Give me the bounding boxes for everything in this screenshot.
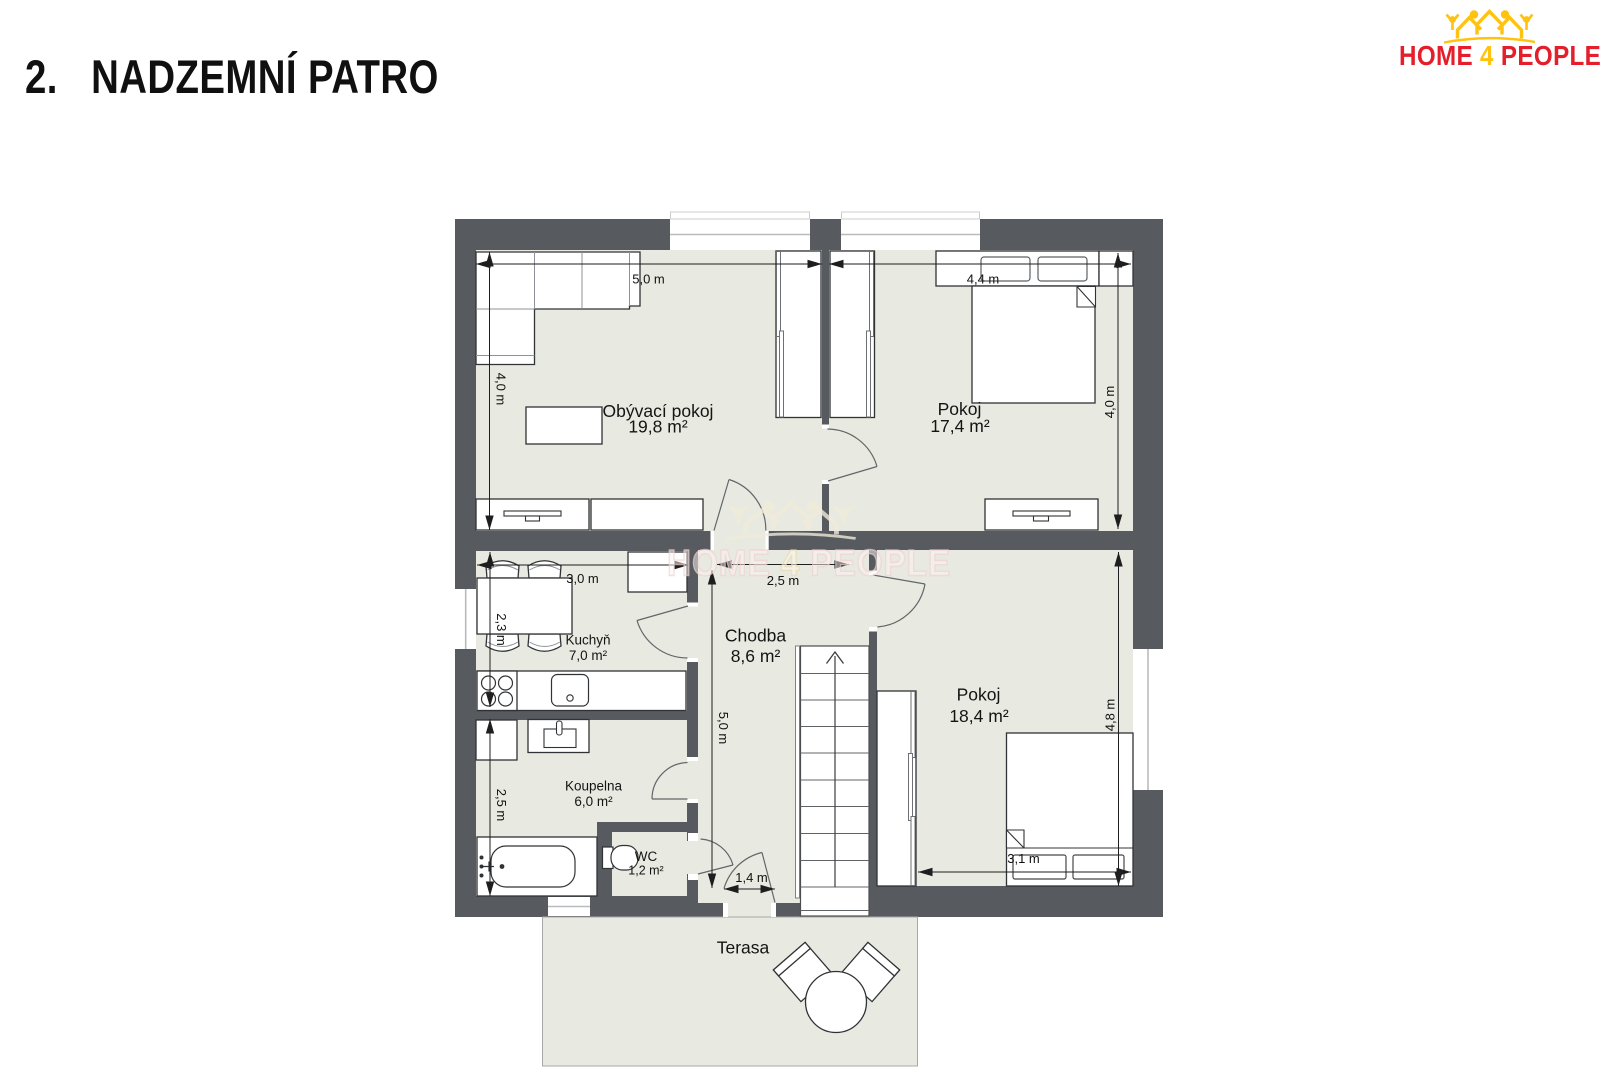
svg-text:4,0 m: 4,0 m bbox=[494, 373, 509, 406]
svg-text:Kuchyň: Kuchyň bbox=[565, 633, 610, 648]
svg-text:19,8 m²: 19,8 m² bbox=[628, 417, 687, 437]
svg-text:WC: WC bbox=[635, 849, 658, 864]
svg-text:5,0 m: 5,0 m bbox=[716, 712, 731, 745]
svg-text:4,0 m: 4,0 m bbox=[1102, 386, 1117, 419]
svg-text:18,4 m²: 18,4 m² bbox=[949, 706, 1008, 726]
svg-text:8,6 m²: 8,6 m² bbox=[731, 646, 781, 666]
svg-text:5,0 m: 5,0 m bbox=[632, 272, 665, 287]
svg-text:Pokoj: Pokoj bbox=[957, 685, 1001, 705]
svg-text:2,3 m: 2,3 m bbox=[494, 613, 509, 646]
svg-text:HOME 4 PEOPLE: HOME 4 PEOPLE bbox=[667, 542, 951, 584]
svg-text:Koupelna: Koupelna bbox=[565, 779, 623, 794]
svg-text:17,4 m²: 17,4 m² bbox=[930, 416, 989, 436]
svg-text:Chodba: Chodba bbox=[725, 626, 787, 646]
svg-text:Terasa: Terasa bbox=[717, 938, 770, 958]
svg-text:4,4 m: 4,4 m bbox=[967, 272, 1000, 287]
svg-text:6,0 m²: 6,0 m² bbox=[574, 794, 613, 809]
svg-text:2,5 m: 2,5 m bbox=[494, 789, 509, 822]
svg-text:4,8 m: 4,8 m bbox=[1103, 699, 1118, 732]
svg-text:7,0 m²: 7,0 m² bbox=[569, 648, 608, 663]
svg-text:HOME 4 PEOPLE: HOME 4 PEOPLE bbox=[1399, 42, 1601, 72]
svg-text:1,4 m: 1,4 m bbox=[735, 870, 768, 885]
svg-text:1,2 m²: 1,2 m² bbox=[628, 864, 663, 878]
svg-text:3,0 m: 3,0 m bbox=[566, 571, 599, 586]
svg-text:3,1 m: 3,1 m bbox=[1007, 851, 1040, 866]
